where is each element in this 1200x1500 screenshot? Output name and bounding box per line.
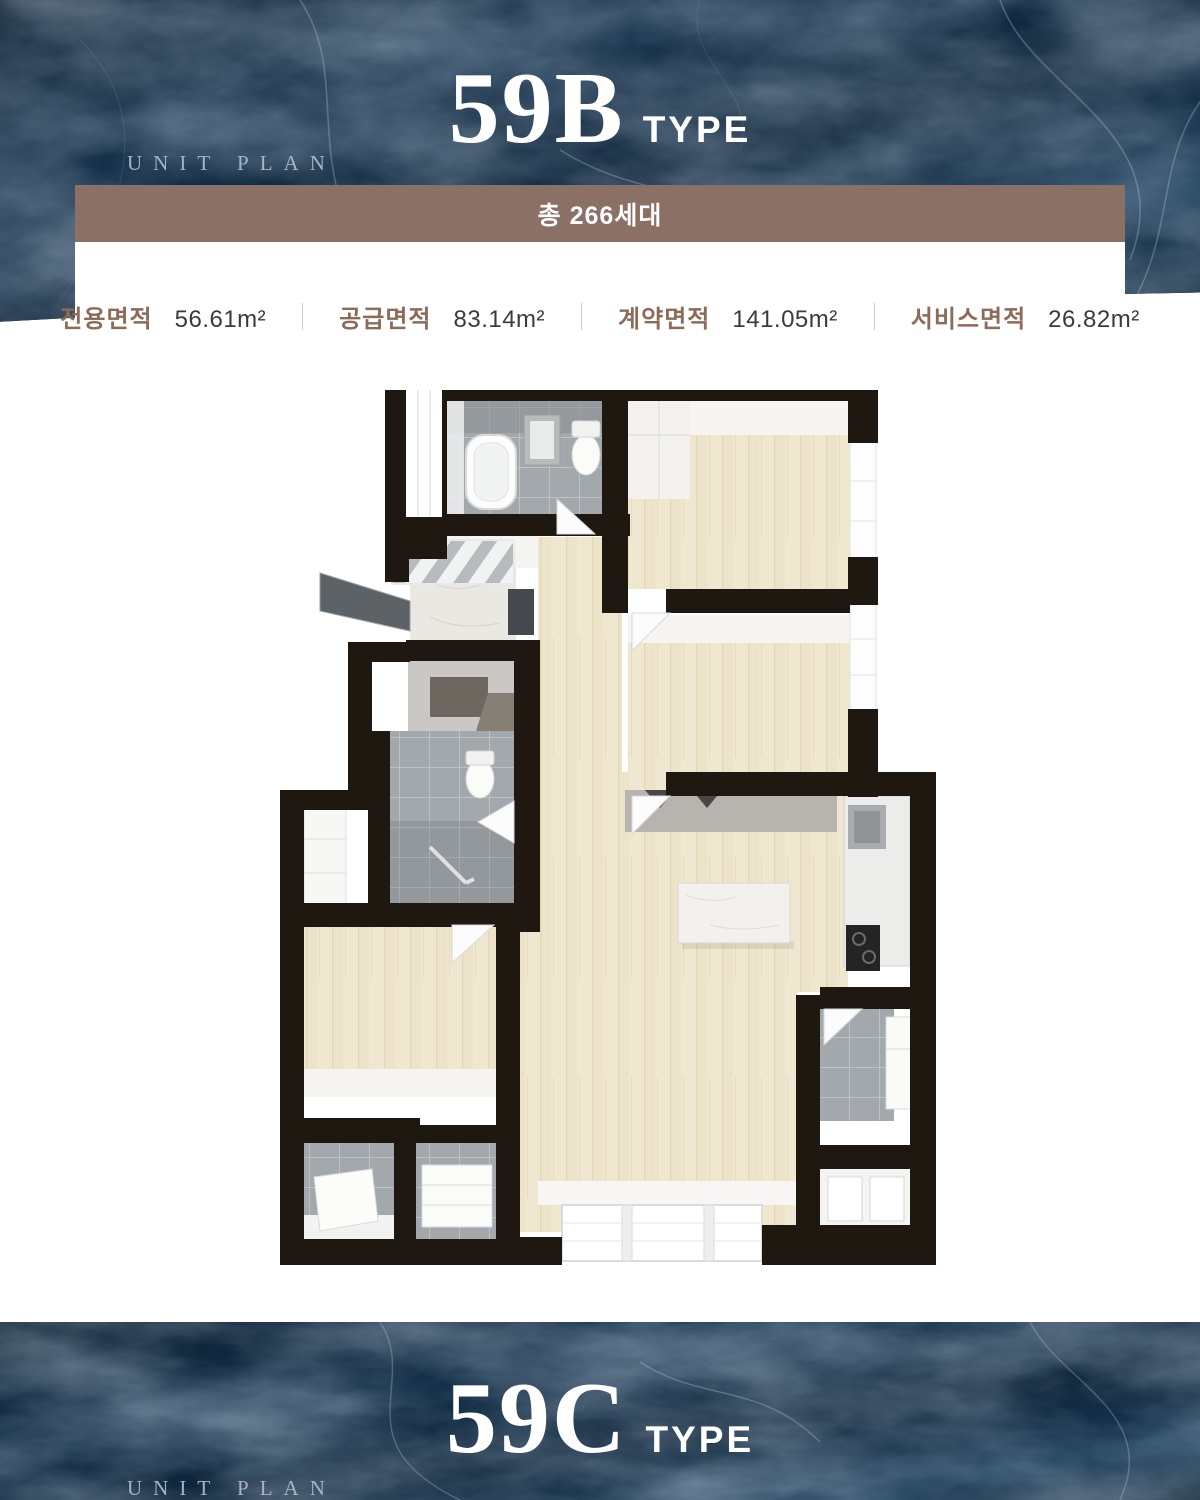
unit-plan-eyebrow-top: UNIT PLAN bbox=[127, 151, 336, 176]
floor-plan-image bbox=[280, 377, 940, 1265]
duct-shaft bbox=[406, 387, 442, 517]
stat-divider bbox=[581, 303, 582, 330]
stat-exclusive-area: 전용면적 56.61m² bbox=[60, 299, 266, 334]
stat-value: 141.05m² bbox=[732, 306, 837, 334]
unit-title-59c: 59C TYPE bbox=[0, 1368, 1200, 1470]
floor-plan-svg bbox=[280, 377, 940, 1265]
stat-label: 공급면적 bbox=[339, 299, 431, 334]
unit-plan-page: 59B TYPE UNIT PLAN 총 266세대 전용면적 56.61m² … bbox=[0, 0, 1200, 1500]
stat-divider bbox=[302, 303, 303, 330]
stat-value: 56.61m² bbox=[175, 306, 267, 334]
unit-title-59b: 59B TYPE bbox=[0, 58, 1200, 160]
stat-label: 전용면적 bbox=[60, 299, 152, 334]
stat-supply-area: 공급면적 83.14m² bbox=[339, 299, 545, 334]
stat-divider bbox=[874, 303, 875, 330]
total-units-bar: 총 266세대 bbox=[75, 185, 1125, 242]
stat-contract-area: 계약면적 141.05m² bbox=[618, 299, 838, 334]
stat-label: 서비스면적 bbox=[911, 299, 1026, 334]
stat-value: 83.14m² bbox=[454, 306, 546, 334]
stat-value: 26.82m² bbox=[1048, 306, 1140, 334]
stat-service-area: 서비스면적 26.82m² bbox=[911, 299, 1140, 334]
area-stats-row: 전용면적 56.61m² 공급면적 83.14m² 계약면적 141.05m² … bbox=[60, 299, 1139, 334]
unit-plan-eyebrow-bottom: UNIT PLAN bbox=[127, 1476, 336, 1500]
unit-title-text: 59B bbox=[449, 58, 625, 160]
area-stats-card: 전용면적 56.61m² 공급면적 83.14m² 계약면적 141.05m² … bbox=[75, 242, 1125, 390]
stat-label: 계약면적 bbox=[618, 299, 710, 334]
unit-title-suffix: TYPE bbox=[643, 109, 752, 151]
unit-title-text: 59C bbox=[446, 1368, 628, 1470]
unit-title-suffix: TYPE bbox=[646, 1419, 755, 1461]
